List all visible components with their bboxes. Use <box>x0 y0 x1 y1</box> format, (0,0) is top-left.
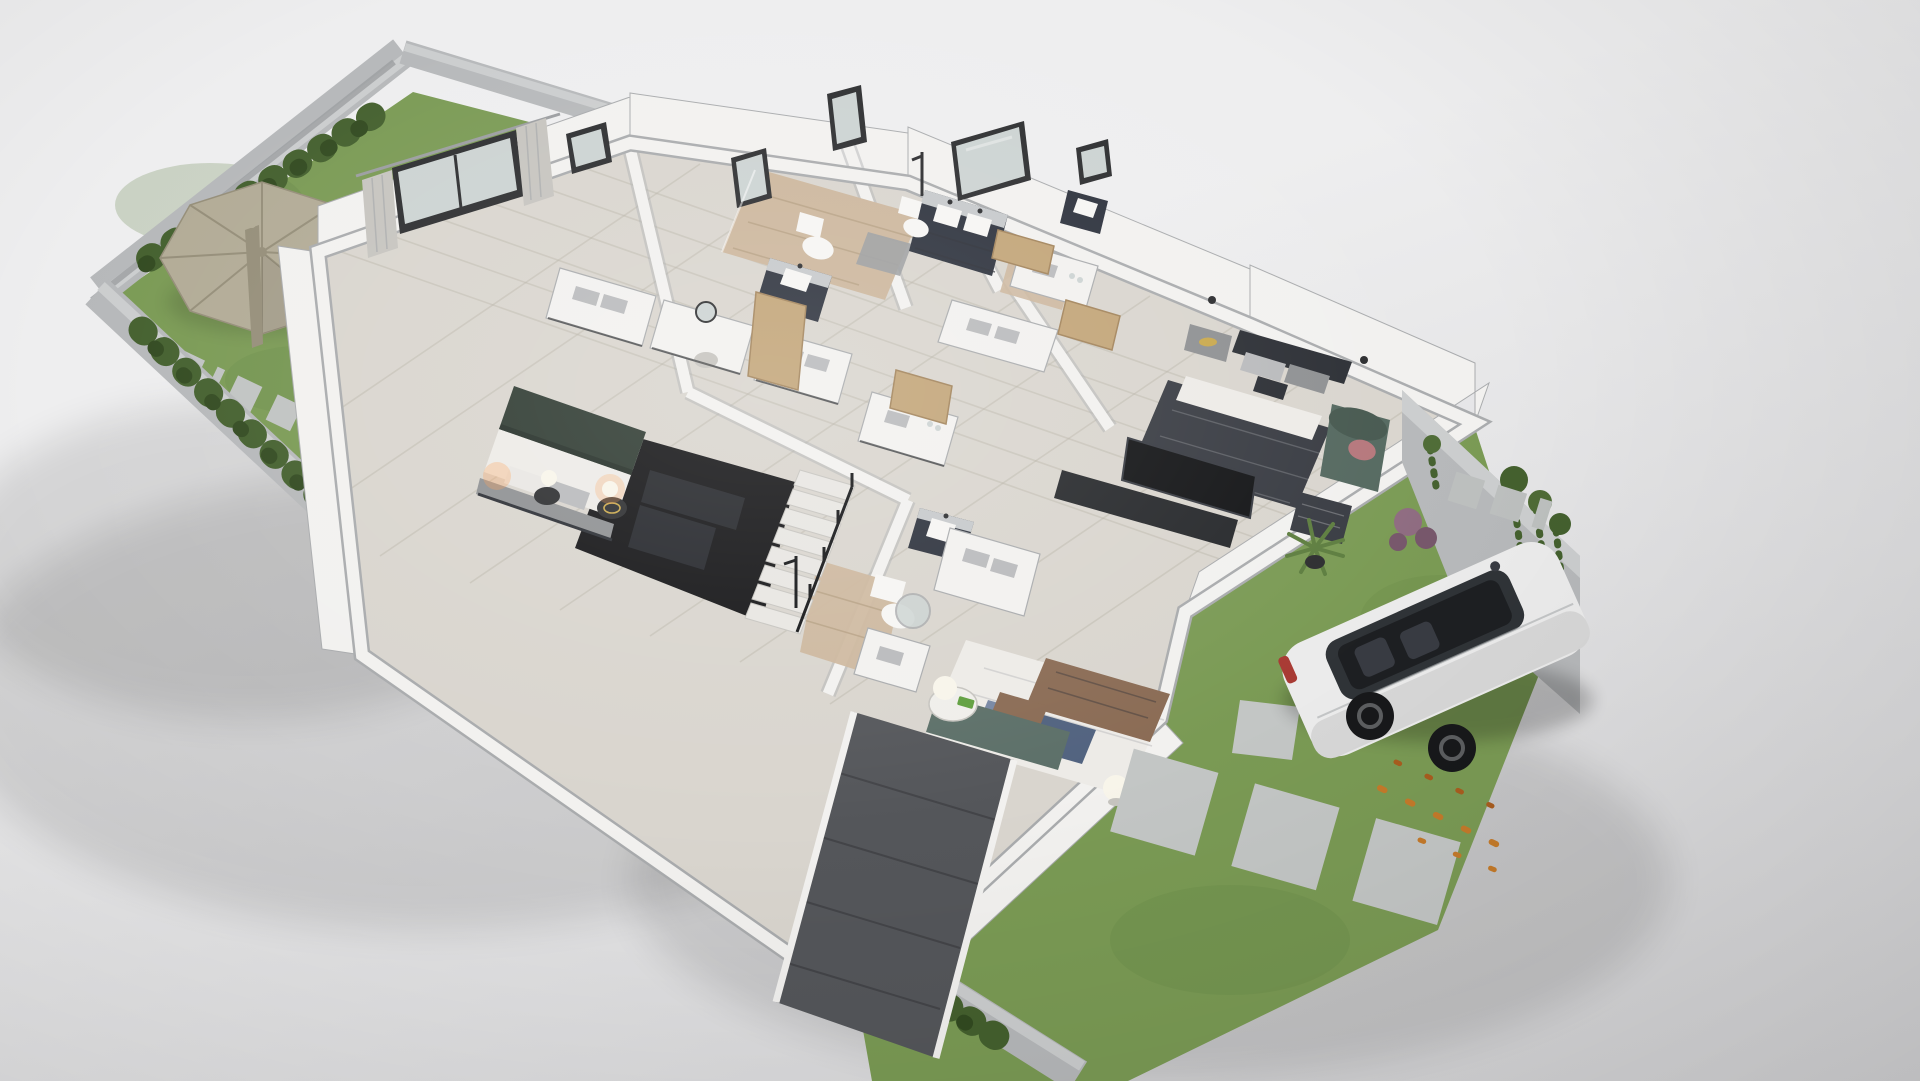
glass-cup <box>1069 273 1075 279</box>
gold-tray <box>1199 338 1217 347</box>
faucet <box>978 209 983 214</box>
closed-umbrella-tip <box>248 220 256 228</box>
globe-lamp <box>933 676 957 700</box>
glass-cup <box>1077 277 1083 283</box>
warm-corner-glow <box>483 462 511 490</box>
plant-pot <box>1305 555 1325 569</box>
ivy-clump <box>1423 435 1441 453</box>
faucet <box>948 200 953 205</box>
wall-sconce <box>1360 356 1368 364</box>
faucet <box>798 264 803 269</box>
master-nightstand <box>534 487 560 505</box>
lawn-shade <box>1110 885 1350 995</box>
wood-door <box>748 292 806 390</box>
car-wheel <box>1346 692 1394 740</box>
purple-shrub <box>1415 527 1437 549</box>
faucet <box>944 514 949 519</box>
curtain-left <box>362 170 398 258</box>
perfume-bottle <box>927 421 933 427</box>
vanity-round-mirror <box>696 302 716 322</box>
ivy-clump <box>1549 513 1571 535</box>
globe-lamp <box>602 481 618 497</box>
wall-sconce <box>1208 296 1216 304</box>
globe-lamp <box>541 470 557 486</box>
purple-shrub <box>1389 533 1407 551</box>
car-wheel <box>1428 724 1476 772</box>
round-mirror <box>896 594 930 628</box>
wall-mirror-glass <box>832 92 861 144</box>
render-canvas <box>0 0 1920 1081</box>
perfume-bottle <box>935 425 941 431</box>
floorplan-scene <box>0 0 1920 1081</box>
